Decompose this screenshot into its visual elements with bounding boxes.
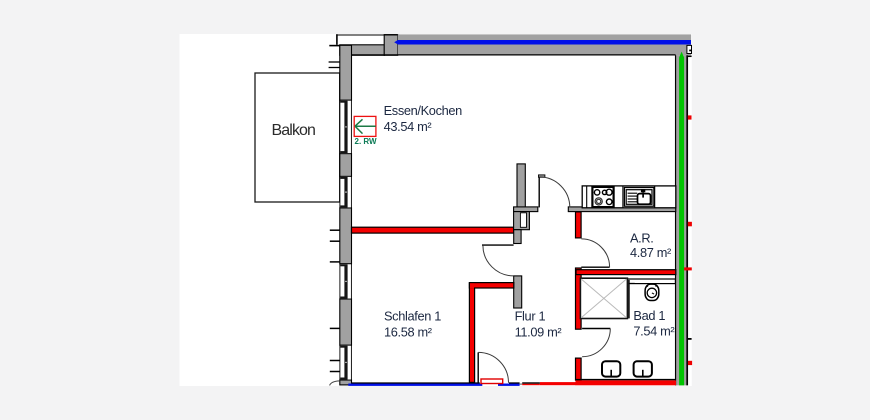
svg-text:2. RW: 2. RW bbox=[355, 137, 378, 146]
svg-text:4.87 m²: 4.87 m² bbox=[630, 245, 672, 260]
svg-text:Essen/Kochen: Essen/Kochen bbox=[384, 103, 463, 118]
svg-text:Balkon: Balkon bbox=[272, 122, 316, 139]
svg-text:11.09 m²: 11.09 m² bbox=[515, 325, 563, 340]
svg-text:43.54 m²: 43.54 m² bbox=[384, 119, 433, 134]
svg-text:7.54 m²: 7.54 m² bbox=[633, 324, 675, 339]
svg-text:Schlafen 1: Schlafen 1 bbox=[384, 308, 441, 323]
svg-text:Flur 1: Flur 1 bbox=[515, 309, 546, 324]
svg-text:Bad 1: Bad 1 bbox=[633, 308, 665, 323]
svg-text:A.R.: A.R. bbox=[630, 230, 654, 245]
svg-text:16.58 m²: 16.58 m² bbox=[384, 324, 433, 339]
